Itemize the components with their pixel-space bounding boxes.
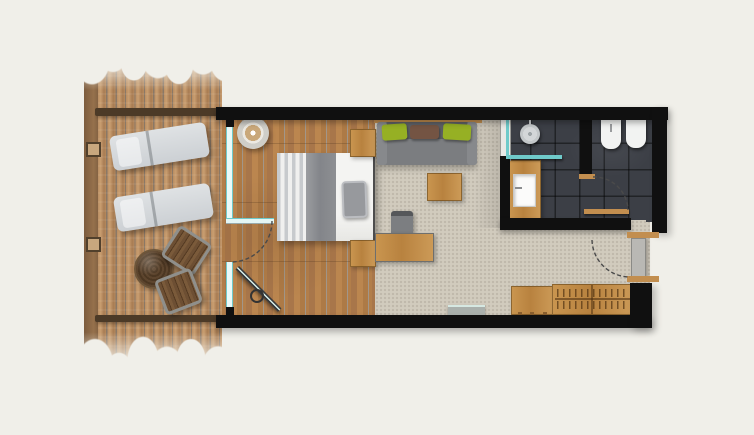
nightstand: [350, 240, 376, 267]
railing-post: [86, 237, 101, 252]
brown-cushion: [410, 125, 439, 139]
entrance-door-leaf: [631, 238, 646, 278]
green-cushion: [381, 123, 407, 141]
bed-blanket: [306, 153, 337, 241]
exterior-wall-right-lower: [630, 283, 652, 328]
watercolor-fade-top: [80, 36, 230, 102]
shower-head: [520, 124, 540, 144]
carpet-shading: [474, 120, 502, 228]
exterior-wall-bottom: [216, 315, 652, 328]
wall-corner-stub-bottom: [226, 307, 234, 317]
bathroom-wall-bottom: [500, 218, 631, 230]
floor-plan-canvas: [0, 0, 754, 435]
door-handle: [250, 289, 264, 303]
coat-rack-section: [552, 284, 634, 315]
bidet: [626, 118, 646, 148]
glass-door-header: [226, 218, 274, 224]
entrance-lintel-top: [627, 232, 659, 238]
exterior-wall-right: [652, 107, 667, 233]
faucet-icon: [515, 187, 522, 189]
pendant-lamp: [237, 117, 269, 149]
wc-wall-cap: [579, 174, 595, 179]
bed-throw: [277, 153, 307, 241]
entrance-lintel-bottom: [627, 276, 659, 282]
watercolor-fade-bottom: [80, 320, 230, 388]
toilet-flush-icon: [610, 124, 612, 132]
washbasin: [513, 174, 536, 207]
entry-threshold: [631, 220, 646, 232]
exterior-wall-top: [216, 107, 668, 120]
wardrobe-cabinet: [511, 286, 554, 315]
rack-divider: [591, 285, 593, 314]
wc-divider-wall: [580, 118, 592, 176]
wall-corner-stub-top: [226, 118, 234, 127]
shower-glass-screen-vertical: [506, 118, 509, 159]
deck-railing-top: [95, 108, 223, 116]
hanger-marks-row: [557, 301, 629, 309]
hanger-rail: [555, 298, 631, 300]
bed-pillow: [341, 181, 367, 219]
coffee-table: [427, 173, 462, 201]
hanger-marks-row: [557, 289, 629, 297]
wc-door-leaf: [584, 209, 629, 214]
green-cushion: [443, 123, 472, 140]
desk: [375, 233, 434, 262]
terrace-glass-wall-upper: [226, 120, 233, 219]
sofa: [377, 122, 477, 165]
railing-post: [86, 142, 101, 157]
shower-glass-screen: [509, 155, 562, 159]
nightstand: [350, 129, 376, 157]
